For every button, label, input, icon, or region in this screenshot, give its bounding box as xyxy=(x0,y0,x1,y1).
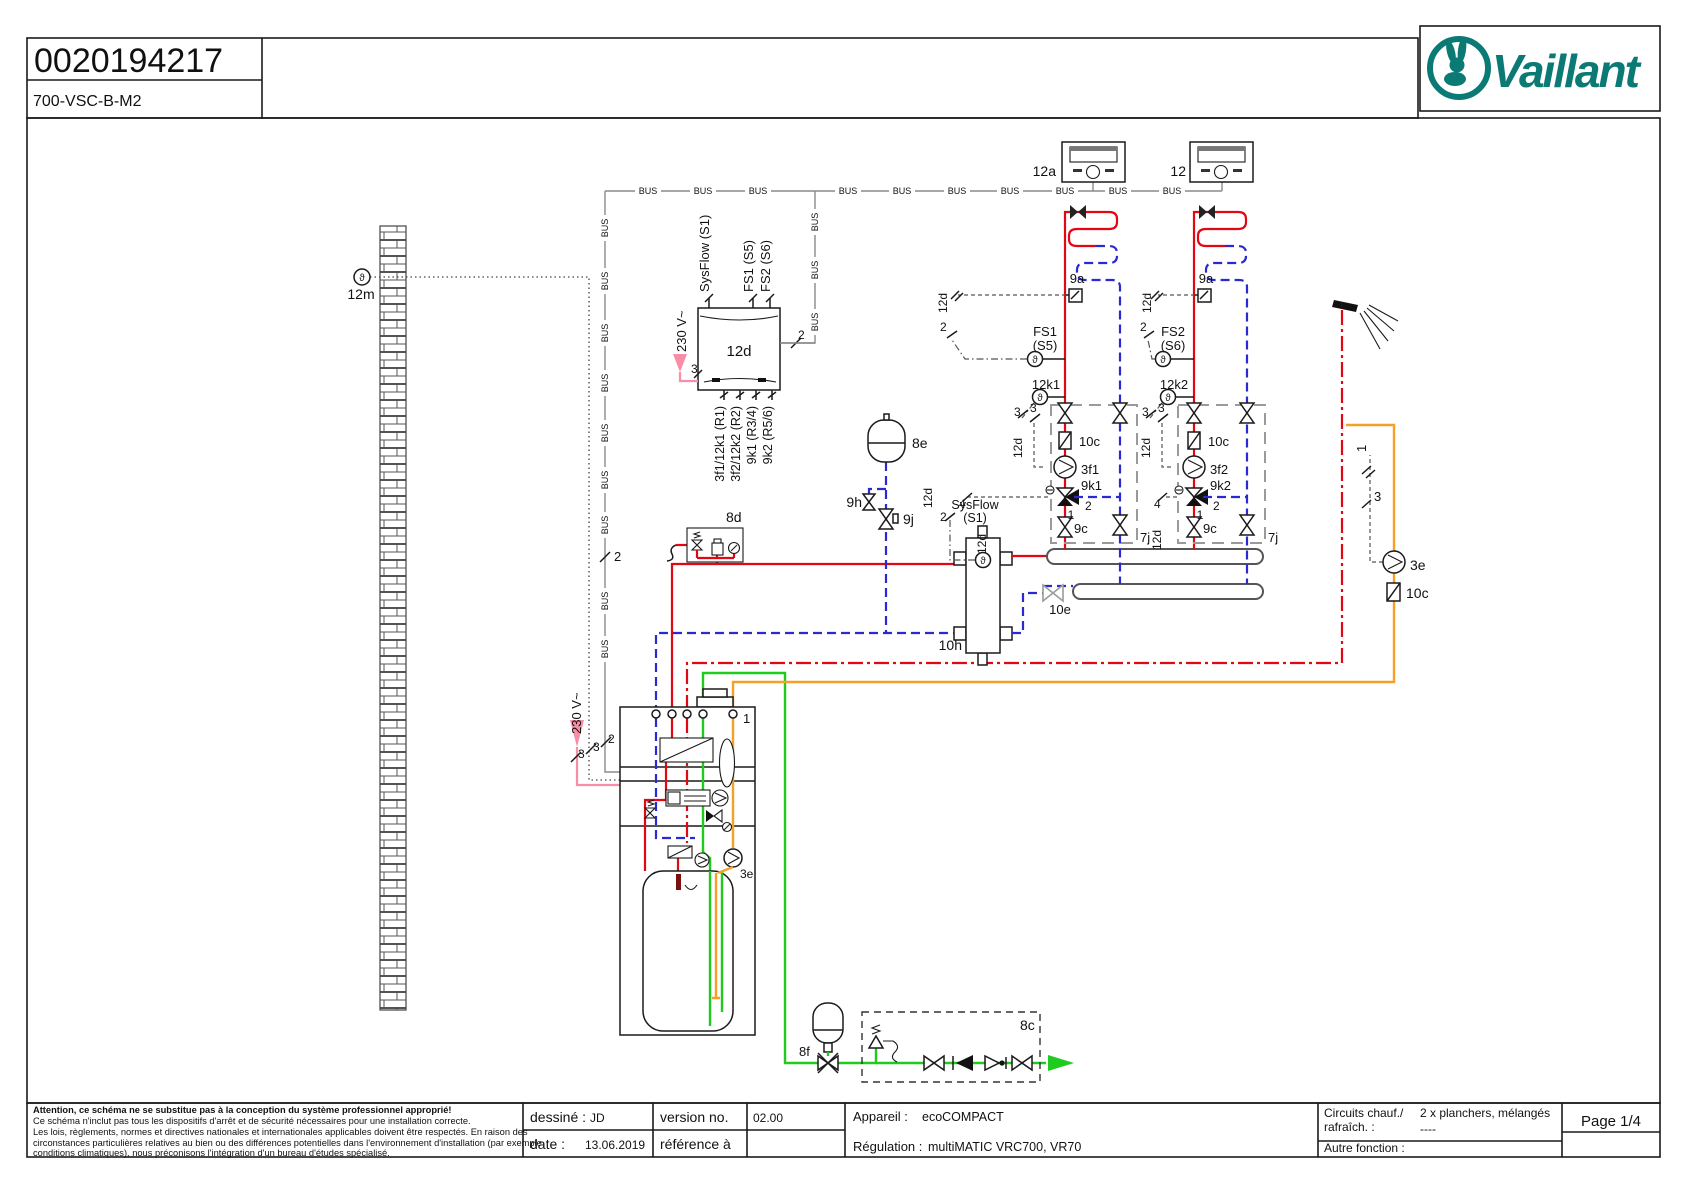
bus-label: BUS xyxy=(639,186,658,196)
attention-line-1: Attention, ce schéma ne se substitue pas… xyxy=(33,1105,451,1115)
expansion-vessel-8f-icon xyxy=(813,1003,843,1043)
shutoff-valve-icon xyxy=(1113,403,1127,423)
label-pump-3f1: 3f1 xyxy=(1081,462,1099,477)
device-value: ecoCOMPACT xyxy=(922,1110,1004,1124)
label-7j-2: 7j xyxy=(1268,530,1278,545)
bus-network xyxy=(600,182,1222,772)
device-label: Appareil : xyxy=(853,1109,908,1124)
valve-9j-icon xyxy=(879,509,893,529)
diagram-label: 3 xyxy=(1142,405,1149,419)
shutoff-valve-icon xyxy=(1058,403,1072,423)
label-mixer-9k1: 9k1 xyxy=(1081,478,1102,493)
label-terminal-r1: 3f1/12k1 (R1) xyxy=(713,406,727,482)
safety-group-8d xyxy=(667,528,743,564)
label-separator-10h: 10h xyxy=(939,637,962,653)
other-function-label: Autre fonction : xyxy=(1324,1141,1405,1155)
label-zone-valve-9a-2: 9a xyxy=(1199,271,1214,286)
attention-line-5: conditions climatiques), nous préconison… xyxy=(33,1148,390,1158)
diagram-label: 12d xyxy=(975,534,989,554)
sensor-glyph: ϑ xyxy=(359,273,365,284)
label-safety-group-8d: 8d xyxy=(726,509,742,525)
diagram-label: 4 xyxy=(1154,497,1161,511)
sensor-glyph: ϑ xyxy=(1037,393,1043,404)
diagram-label: 2 xyxy=(1213,499,1220,513)
label-pump-3e-internal: 3e xyxy=(740,867,754,881)
diagram-label: 3 xyxy=(1030,401,1037,415)
bus-label: BUS xyxy=(600,374,610,393)
circuits-value-1: 2 x planchers, mélangés xyxy=(1420,1106,1550,1120)
bus-label: BUS xyxy=(600,324,610,343)
sensor-glyph: ϑ xyxy=(980,556,986,567)
diagram-label: (S6) xyxy=(1161,338,1186,353)
label-valve-9c-2: 9c xyxy=(1203,521,1217,536)
diagram-label: 12d xyxy=(1139,438,1153,458)
circuits-label-1: Circuits chauf./ xyxy=(1324,1106,1404,1120)
bus-label: BUS xyxy=(600,272,610,291)
label-room-control-12: 12 xyxy=(1170,163,1186,179)
cold-water-group xyxy=(813,1003,1040,1082)
label-sensor-12k2: 12k2 xyxy=(1160,377,1188,392)
diagram-label: 12d xyxy=(1140,293,1154,313)
bus-label: BUS xyxy=(839,186,858,196)
hare-icon xyxy=(1444,37,1468,86)
bus-label: BUS xyxy=(749,186,768,196)
meter-icon xyxy=(985,1056,999,1070)
shutoff-valve-icon xyxy=(1240,403,1254,423)
bus-label: BUS xyxy=(600,219,610,238)
bus-label: BUS xyxy=(810,261,820,280)
valve-10e-icon xyxy=(1043,585,1063,601)
diagram-label: 3 xyxy=(691,362,698,376)
diagram-label: 2 xyxy=(1140,320,1147,334)
bus-label: BUS xyxy=(1001,186,1020,196)
expansion-vessel-8e xyxy=(863,414,905,633)
bus-label: BUS xyxy=(948,186,967,196)
label-230v-boiler: 230 V~ xyxy=(569,692,584,734)
label-valve-9c-1: 9c xyxy=(1074,521,1088,536)
return-manifold xyxy=(1073,584,1263,599)
vaillant-logo: Vaillant xyxy=(1430,37,1642,97)
bus-label: BUS xyxy=(1056,186,1075,196)
diagram-label: 3 xyxy=(593,740,600,754)
diagram-label: 2 xyxy=(1085,499,1092,513)
date-value: 13.06.2019 xyxy=(585,1138,645,1152)
label-230v-vr70: 230 V~ xyxy=(674,310,689,352)
label-room-control-12a: 12a xyxy=(1033,163,1057,179)
bus-label: BUS xyxy=(694,186,713,196)
version-value: 02.00 xyxy=(753,1111,783,1125)
diagram-label: (S1) xyxy=(963,511,987,525)
label-flow-sensor-fs2: FS2 xyxy=(1161,324,1185,339)
bus-label: BUS xyxy=(600,516,610,535)
diagram-labels: 12m12a122SysFlow (S1)FS1 (S5)FS2 (S6)230… xyxy=(347,163,1428,1059)
diagram-label: 2 xyxy=(614,549,621,564)
diagram-label: 2 xyxy=(940,510,947,524)
bus-label: BUS xyxy=(1109,186,1128,196)
circuits-value-2: ---- xyxy=(1420,1122,1436,1136)
bus-label: BUS xyxy=(810,213,820,232)
bus-label: BUS xyxy=(810,313,820,332)
attention-line-2: Ce schéma n'inclut pas tous les disposit… xyxy=(33,1116,471,1126)
diagram-label: 2 xyxy=(940,320,947,334)
room-control-12a xyxy=(1062,142,1125,182)
label-terminal-fs1: FS1 (S5) xyxy=(741,240,756,292)
valve-icon xyxy=(1012,1056,1032,1070)
label-terminal-fs2: FS2 (S6) xyxy=(758,240,773,292)
page-number: Page 1/4 xyxy=(1581,1113,1641,1130)
version-label: version no. xyxy=(660,1109,728,1125)
zone-valve-icon xyxy=(1199,205,1215,219)
230v-arrow-icon xyxy=(673,354,687,372)
regulation-value: multiMATIC VRC700, VR70 xyxy=(928,1140,1081,1154)
label-vr70-12d: 12d xyxy=(726,343,751,360)
diagram-label: 12d xyxy=(1011,438,1025,458)
label-terminal-r56: 9k2 (R5/6) xyxy=(761,406,775,464)
diagram-label: 2 xyxy=(798,328,805,342)
doc-code: 700-VSC-B-M2 xyxy=(33,93,142,110)
diagram-label: 3 xyxy=(578,747,585,761)
sensor-glyph: ϑ xyxy=(1165,393,1171,404)
drawn-value: JD xyxy=(590,1111,605,1125)
diagram-label: 12d xyxy=(921,488,935,508)
brand-name: Vaillant xyxy=(1492,45,1642,97)
cold-water-arrow-icon xyxy=(1048,1055,1074,1071)
schematic-sheet: 0020194217 700-VSC-B-M2 Vaillant ϑ xyxy=(0,0,1684,1190)
label-safety-group-8c: 8c xyxy=(1020,1017,1035,1033)
footer: Attention, ce schéma ne se substitue pas… xyxy=(27,1103,1660,1158)
schematic-svg: 0020194217 700-VSC-B-M2 Vaillant ϑ xyxy=(0,0,1684,1190)
label-flow-sensor-fs1: FS1 xyxy=(1033,324,1057,339)
valve-icon xyxy=(924,1056,944,1070)
diagram-label: 2 xyxy=(608,732,615,746)
label-terminal-sysflow: SysFlow (S1) xyxy=(697,215,712,292)
diagram-label: (S5) xyxy=(1033,338,1058,353)
sensor-glyph: ϑ xyxy=(1032,355,1038,366)
zone-valve-icon xyxy=(1070,205,1086,219)
manifolds xyxy=(1012,549,1263,633)
reference-label: référence à xyxy=(660,1136,731,1152)
diagram-label: 4 xyxy=(959,497,966,511)
label-expansion-8e: 8e xyxy=(912,435,928,451)
bus-label: BUS xyxy=(893,186,912,196)
label-outdoor-sensor-12m: 12m xyxy=(347,286,374,302)
label-mixer-9k2: 9k2 xyxy=(1210,478,1231,493)
regulation-label: Régulation : xyxy=(853,1139,922,1154)
room-control-12 xyxy=(1190,142,1253,182)
heating-circuit-1: ϑ ϑ xyxy=(947,205,1137,584)
label-valve-9j: 9j xyxy=(903,511,914,527)
label-valve-10e: 10e xyxy=(1049,602,1071,617)
bus-label: BUS xyxy=(600,592,610,611)
label-7j-1: 7j xyxy=(1140,530,1150,545)
diagram-label: 3 xyxy=(1014,405,1021,419)
supply-manifold xyxy=(1047,549,1263,564)
diagram-label: 3 xyxy=(1374,489,1381,504)
diagram-label: 1 xyxy=(1068,508,1075,522)
label-zone-valve-9a-1: 9a xyxy=(1070,271,1085,286)
label-boiler-1: 1 xyxy=(743,711,750,726)
attention-line-3: Les lois, règlements, normes et directiv… xyxy=(33,1127,528,1137)
check-valve-icon xyxy=(956,1055,973,1071)
drawn-label: dessiné : xyxy=(530,1109,586,1125)
shutoff-valve-icon xyxy=(1113,515,1127,535)
bus-label: BUS xyxy=(600,471,610,490)
label-valve-9h: 9h xyxy=(846,494,862,510)
safety-group-8c-box xyxy=(862,1012,1040,1082)
circuits-label-2: rafraîch. : xyxy=(1324,1120,1375,1134)
valve-9h-icon xyxy=(863,494,875,510)
sensor-glyph: ϑ xyxy=(1160,355,1166,366)
label-terminal-r2: 3f2/12k2 (R2) xyxy=(729,406,743,482)
diagram-label: 1 xyxy=(1197,508,1204,522)
wall xyxy=(380,226,406,1010)
label-check-10c-2: 10c xyxy=(1208,434,1229,449)
diagram-label: 3 xyxy=(1158,401,1165,415)
bus-label: BUS xyxy=(600,640,610,659)
label-check-10c-circ: 10c xyxy=(1406,585,1429,601)
bus-label: BUS xyxy=(1163,186,1182,196)
bus-label: BUS xyxy=(600,424,610,443)
doc-number: 0020194217 xyxy=(34,42,223,80)
shutoff-valve-icon xyxy=(1240,515,1254,535)
diagram-label: 1 xyxy=(1354,445,1369,452)
label-sensor-12k1: 12k1 xyxy=(1032,377,1060,392)
diagram-label: 12d xyxy=(936,293,950,313)
label-terminal-r34: 9k1 (R3/4) xyxy=(745,406,759,464)
date-label: date : xyxy=(530,1136,565,1152)
label-expansion-8f: 8f xyxy=(799,1044,810,1059)
label-circulation-pump-3e: 3e xyxy=(1410,557,1426,573)
attention-line-4: circonstances particulières relatives au… xyxy=(33,1138,542,1148)
shutoff-valve-icon xyxy=(1187,403,1201,423)
label-pump-3f2: 3f2 xyxy=(1210,462,1228,477)
diagram-label: 12d xyxy=(1150,530,1164,550)
label-check-10c-1: 10c xyxy=(1079,434,1100,449)
